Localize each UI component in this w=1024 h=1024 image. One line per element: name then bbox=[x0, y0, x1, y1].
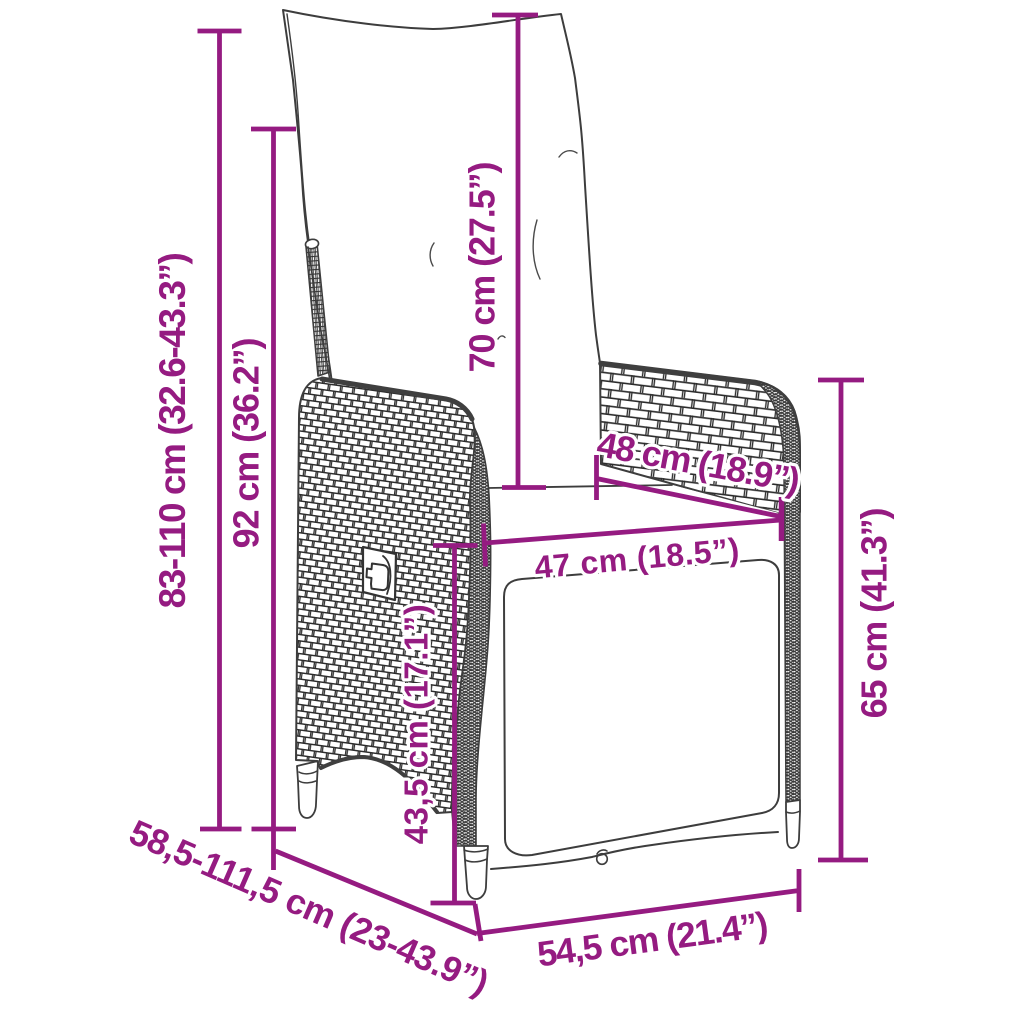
svg-text:65 cm (41.3”): 65 cm (41.3”) bbox=[854, 508, 895, 718]
svg-text:43,5 cm (17.1”): 43,5 cm (17.1”) bbox=[398, 604, 435, 844]
svg-text:92 cm (36.2”): 92 cm (36.2”) bbox=[226, 338, 267, 548]
svg-text:83-110 cm (32.6-43.3”): 83-110 cm (32.6-43.3”) bbox=[152, 253, 193, 608]
svg-text:70 cm (27.5”): 70 cm (27.5”) bbox=[462, 162, 503, 372]
